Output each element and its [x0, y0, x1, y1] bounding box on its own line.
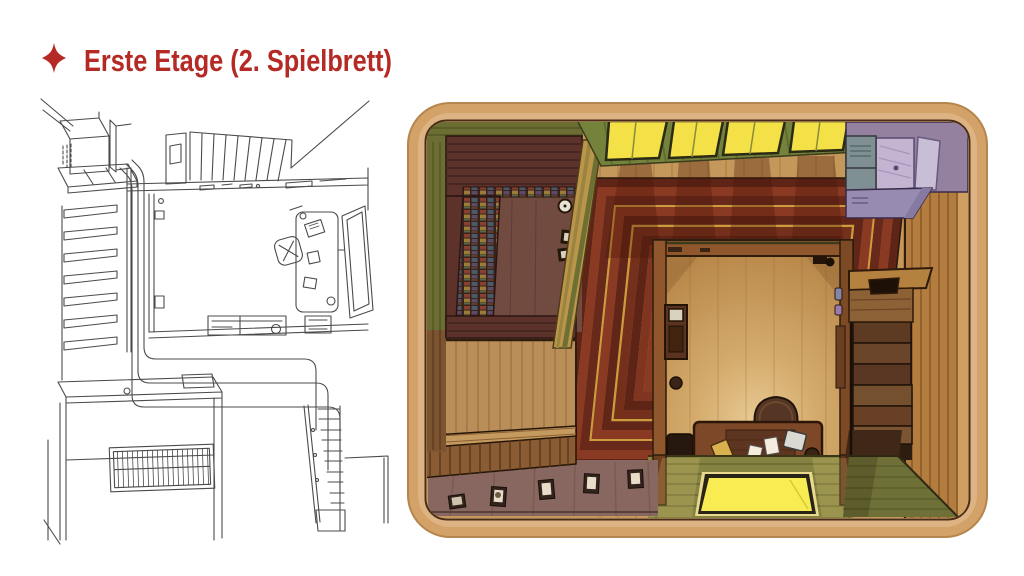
svg-text:Erste Etage (2. Spielbrett): Erste Etage (2. Spielbrett) — [84, 43, 392, 78]
